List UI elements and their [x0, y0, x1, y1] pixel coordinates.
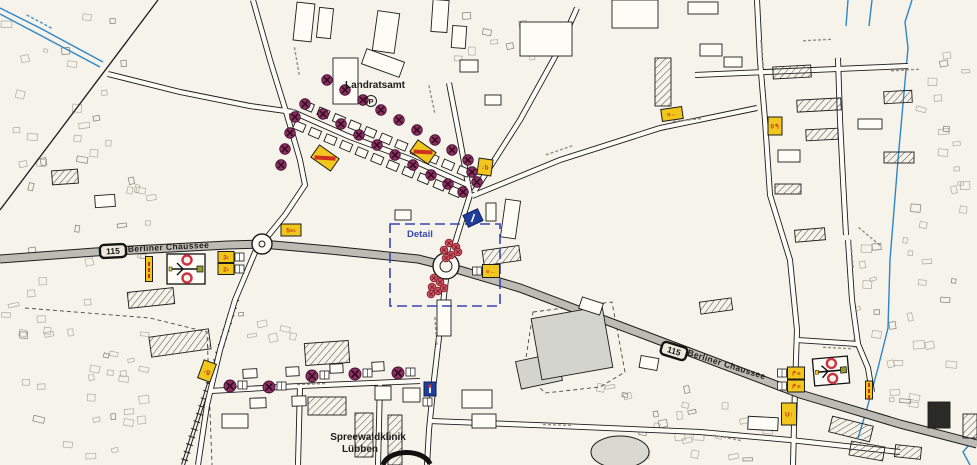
building [472, 414, 496, 428]
building [724, 57, 742, 67]
direction-sign: ≡← [661, 107, 683, 122]
building-hatched [773, 65, 812, 79]
building-hatched [894, 445, 921, 460]
building [858, 119, 882, 129]
parking-letter: P [368, 97, 373, 106]
sign-glyph: 0↰ [770, 122, 779, 130]
building [778, 150, 800, 162]
building [639, 356, 659, 371]
direction-sign: U↑ [782, 403, 797, 425]
roundabout-island [259, 241, 265, 247]
direction-sign [146, 257, 153, 282]
building [486, 203, 496, 221]
building [286, 367, 299, 377]
building-hatched [655, 58, 671, 106]
building-hatched [884, 152, 914, 163]
sign-glyph: U↑ [785, 411, 793, 418]
building [403, 388, 420, 402]
building [95, 194, 116, 207]
building-hatched [963, 414, 977, 438]
sign-glyph: 5≡‹ [286, 227, 296, 234]
building [460, 60, 478, 72]
building [395, 210, 411, 220]
building [520, 22, 572, 56]
label-clinic-1: Spreewaldklinik [330, 432, 406, 443]
label-landratsamt: Landratsamt [345, 80, 406, 91]
yellow-chip [815, 370, 818, 374]
route-badge-115: 115 [100, 244, 127, 258]
signal-ring [183, 256, 192, 265]
building-large-gray [531, 306, 613, 380]
junction-schematic [812, 356, 849, 386]
building-hatched [797, 98, 842, 112]
info-sign [424, 382, 436, 396]
direction-sign: ↱≡ [788, 367, 805, 379]
building [688, 2, 718, 14]
building [431, 0, 449, 33]
building-hatched [806, 128, 839, 141]
signal-ring [183, 274, 192, 283]
direction-sign: 2‹ [218, 264, 234, 275]
pond [591, 436, 649, 465]
building [293, 2, 315, 42]
red-dot [428, 384, 431, 387]
label-clinic-2: Lübben [342, 444, 378, 455]
label-detail: Detail [407, 229, 433, 240]
sign-glyph: ↱≡ [791, 382, 800, 390]
building [462, 390, 492, 408]
direction-sign: 0↰ [768, 117, 782, 135]
building [222, 414, 248, 428]
building-hatched [304, 340, 349, 365]
scanned-city-map: ↓b3‹2‹5≡‹≡←≡←0↰↱≡↱≡U↑↓g Landratsamt P De… [0, 0, 977, 465]
building-hatched [775, 184, 801, 194]
building [375, 386, 391, 400]
junction-schematic [167, 254, 205, 284]
sign-glyph: ↱≡ [791, 369, 800, 377]
sign-glyph: ≡← [486, 268, 496, 275]
building-hatched [308, 397, 346, 415]
building [292, 396, 306, 406]
yellow-chip [169, 267, 172, 271]
sign-glyph: ↓b [481, 164, 489, 172]
building [485, 95, 501, 105]
building [372, 362, 384, 372]
map-svg: ↓b3‹2‹5≡‹≡←≡←0↰↱≡↱≡U↑↓g Landratsamt P De… [0, 0, 977, 465]
sign-glyph: 3‹ [223, 254, 229, 261]
building [316, 7, 333, 38]
direction-sign [866, 381, 873, 399]
sign-glyph: 2‹ [223, 266, 229, 273]
building [700, 44, 722, 56]
direction-sign: 3‹ [218, 252, 234, 263]
sign-glyph: ≡← [667, 111, 678, 119]
building-hatched [795, 228, 826, 243]
direction-sign: 5≡‹ [281, 224, 301, 236]
building [250, 398, 266, 409]
building-hatched [52, 169, 79, 185]
building [330, 364, 343, 374]
signal-ring [826, 359, 836, 369]
green-arrow-chip [840, 367, 847, 374]
badge-number: 115 [106, 246, 120, 257]
building [748, 416, 779, 431]
green-arrow-chip [197, 266, 203, 272]
building [451, 26, 467, 49]
building [243, 369, 257, 379]
signal-ring [828, 374, 838, 384]
direction-sign: ≡← [483, 265, 500, 278]
building-dark [928, 402, 950, 428]
direction-sign: ↓b [477, 158, 493, 176]
direction-sign: ↱≡ [788, 380, 805, 392]
building-hatched [884, 90, 913, 103]
building [612, 0, 658, 28]
